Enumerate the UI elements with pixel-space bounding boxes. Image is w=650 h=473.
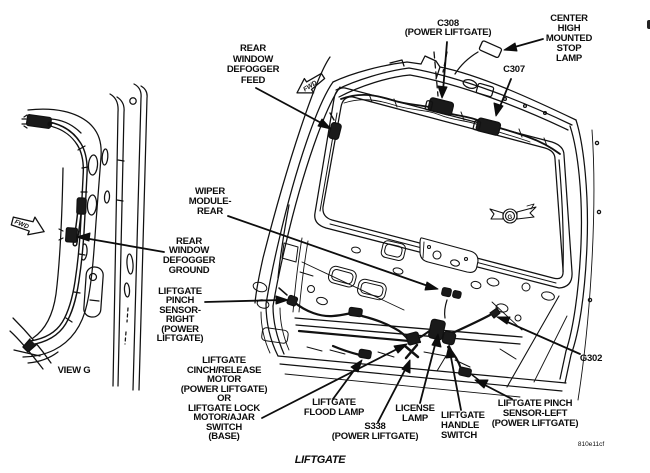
svg-text:G: G <box>508 215 513 221</box>
svg-text:FWD: FWD <box>302 79 318 93</box>
